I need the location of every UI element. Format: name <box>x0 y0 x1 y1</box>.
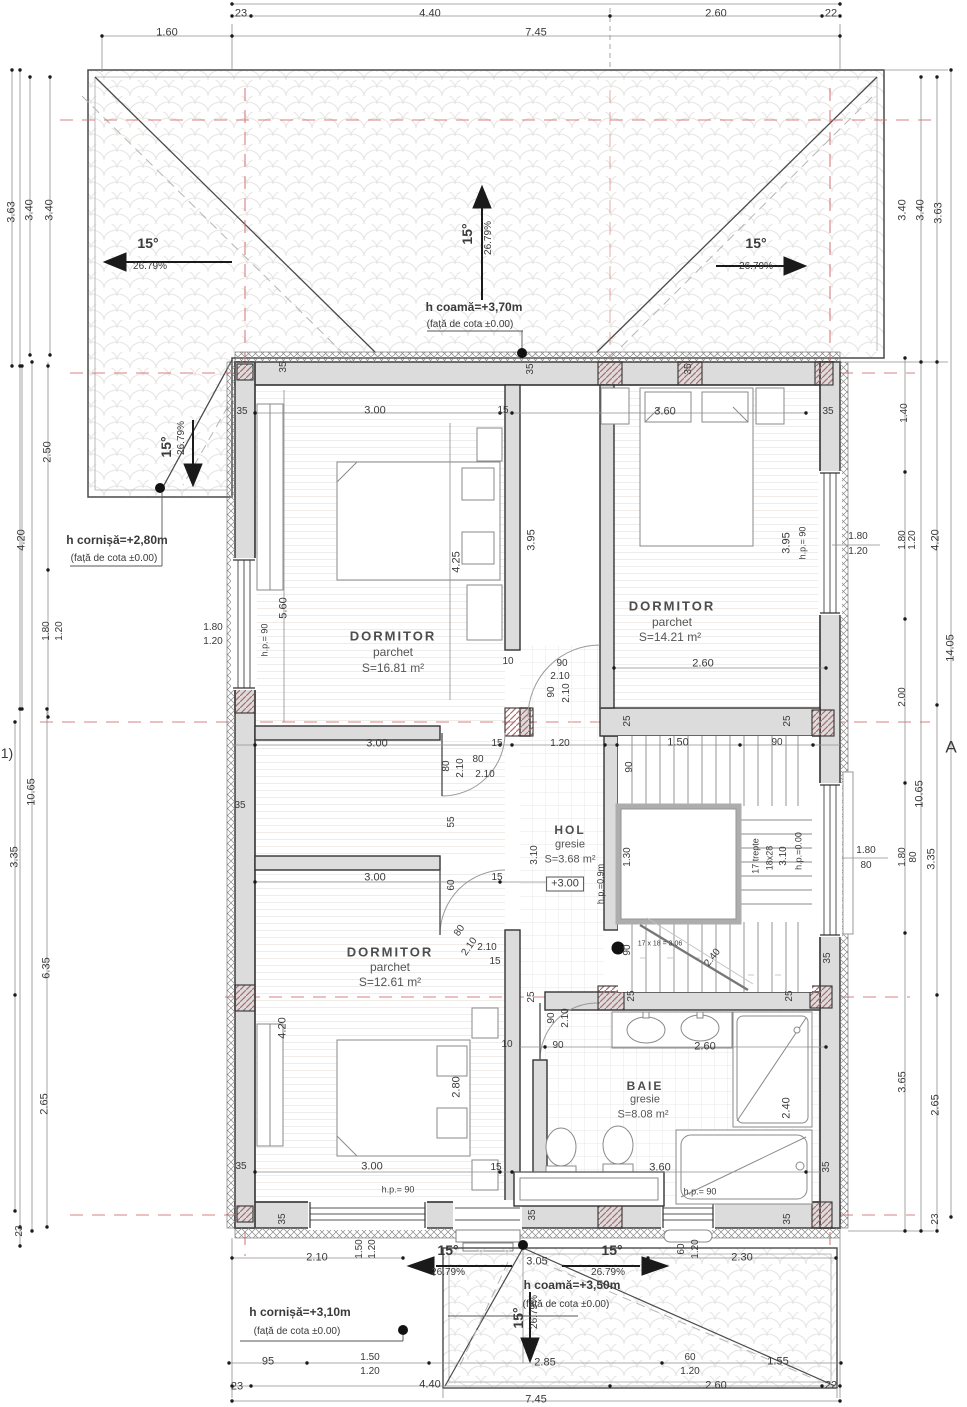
eave-ref-dot <box>398 1325 408 1335</box>
arrow-left-icon <box>408 1257 434 1275</box>
staircase <box>612 736 813 992</box>
ridge-ref-dot <box>518 1240 528 1250</box>
floor-plan: 234.402.60221.607.453.633.403.402.504.20… <box>0 0 967 1407</box>
toilet-icon <box>603 1126 633 1164</box>
ridge-ref-dot <box>517 348 527 358</box>
floor-plan-drawing <box>0 0 967 1407</box>
porch-roof <box>443 1248 837 1388</box>
toilet-icon <box>546 1128 576 1166</box>
eave-ref-dot <box>155 483 165 493</box>
sink-icon <box>681 1015 719 1041</box>
sink-icon <box>627 1017 665 1043</box>
